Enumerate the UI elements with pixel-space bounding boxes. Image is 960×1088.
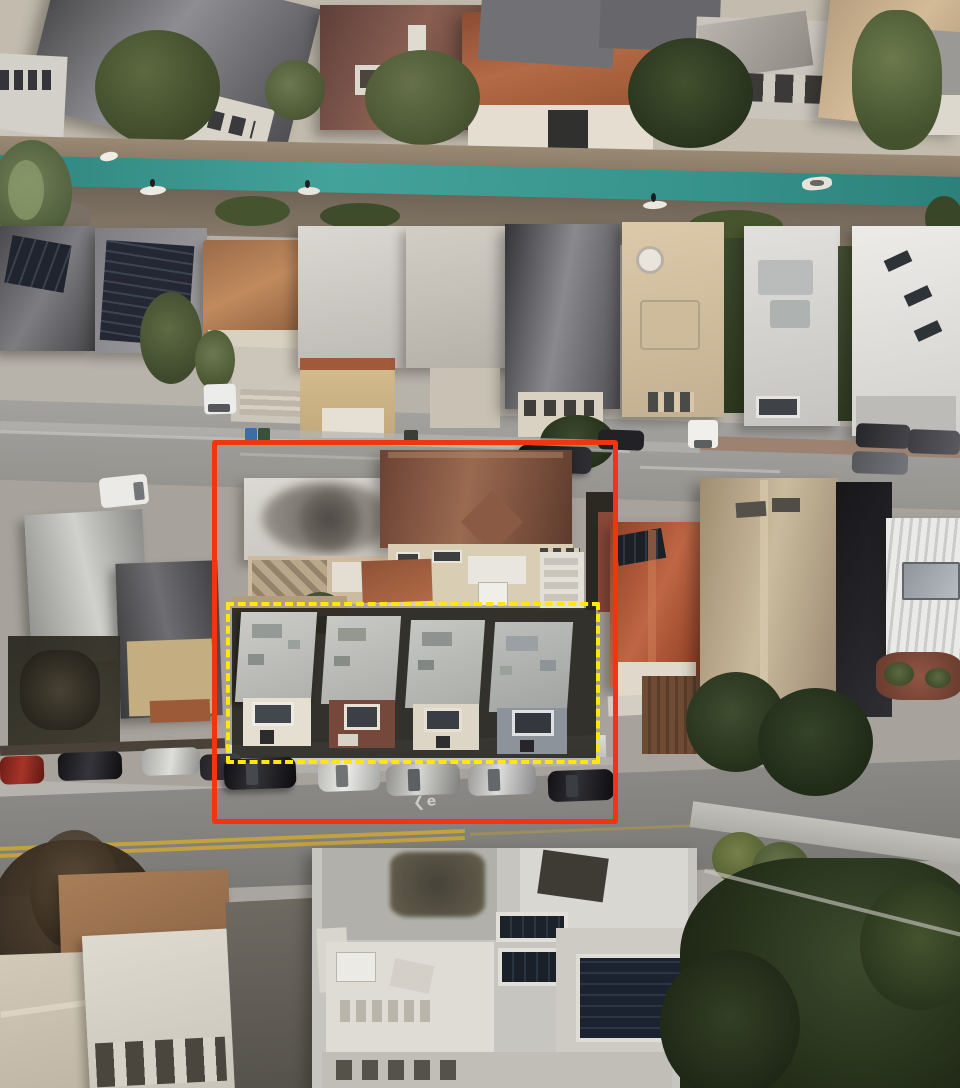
house-top-brown-chimney [408, 25, 426, 51]
tree-top-conifer [852, 10, 942, 150]
solar-complex-south-windows [336, 1060, 456, 1080]
tree-mass-bottom-right-b [660, 950, 800, 1088]
solar-complex-dark-wedge [537, 850, 608, 903]
roof-top-grey-a [478, 0, 618, 69]
east-garden-green-b [925, 668, 951, 688]
hedge-row2-a [724, 238, 744, 413]
bank-bush-a [215, 196, 290, 226]
east-tan-skylight-a [736, 501, 767, 518]
bottom-alley-dark [225, 898, 325, 1088]
van-white-street-front [694, 440, 712, 448]
solar-complex-patio-dark [390, 852, 485, 917]
tree-top-small [265, 60, 325, 120]
east-tan-skylight-b [772, 498, 800, 512]
car-dark-upper-b [908, 429, 960, 455]
car-black-parked [58, 751, 123, 781]
east-ac-box [902, 562, 960, 600]
row2-white-modern-window [756, 396, 800, 418]
row2-dark-gable-solar [4, 235, 71, 293]
row2-steep-gable [505, 224, 620, 409]
row2-pale-flat [298, 226, 406, 368]
aerial-photo-canvas[interactable]: ❮e [0, 0, 960, 1088]
row2-tree-b [195, 330, 235, 390]
row2-white-modern-box-b [770, 300, 810, 328]
row2-cream-flat [406, 226, 518, 368]
row3-yard-texture [20, 650, 100, 730]
row2-steep-gable-windows [524, 400, 594, 416]
tree-top-dark [628, 38, 753, 148]
car-dark-upper-c [852, 451, 909, 475]
east-garden-green-a [884, 662, 914, 686]
row2-terracotta-hip [203, 240, 305, 335]
row2-tan-modern-deck [640, 300, 700, 350]
row2-tan-roof-sliver [300, 358, 395, 370]
tree-top-a [95, 30, 220, 145]
car-red-parked [0, 755, 44, 785]
house-top-terracotta-door [548, 110, 588, 150]
paddler-b [305, 180, 310, 188]
palm-tree-core [8, 160, 44, 220]
east-tile-ridge [648, 530, 656, 680]
tree-top-b [365, 50, 480, 145]
car-silver-parked [142, 747, 201, 776]
row2-driveway [430, 368, 500, 428]
paddleboard-b [298, 187, 320, 195]
row2-white-modern-box-a [758, 260, 813, 295]
paddler-a [150, 179, 155, 187]
solar-panel-a [500, 916, 564, 938]
van-white-row3-windshield [133, 482, 145, 501]
van-white-row2-front [208, 404, 230, 412]
row2-tan-modern-ac [636, 246, 664, 274]
bottom-white-long-windows [95, 1037, 227, 1088]
tree-mid-right-b [758, 688, 873, 796]
solar-complex-deck-items [340, 1000, 430, 1022]
annotation-yellow-box [226, 602, 600, 764]
dinghy-interior [810, 180, 824, 186]
hedge-row2-b [838, 246, 852, 421]
paddler-c [651, 193, 656, 202]
row2-tan-modern-windows [648, 392, 694, 412]
car-dark-upper-a [856, 423, 911, 449]
road-marking-sharrow: ❮e [412, 793, 439, 812]
row3-terracotta-bit [150, 699, 211, 723]
row2-tree-a [140, 292, 202, 384]
solar-complex-white-box [336, 952, 376, 982]
house-left-balcony-windows [0, 70, 55, 90]
